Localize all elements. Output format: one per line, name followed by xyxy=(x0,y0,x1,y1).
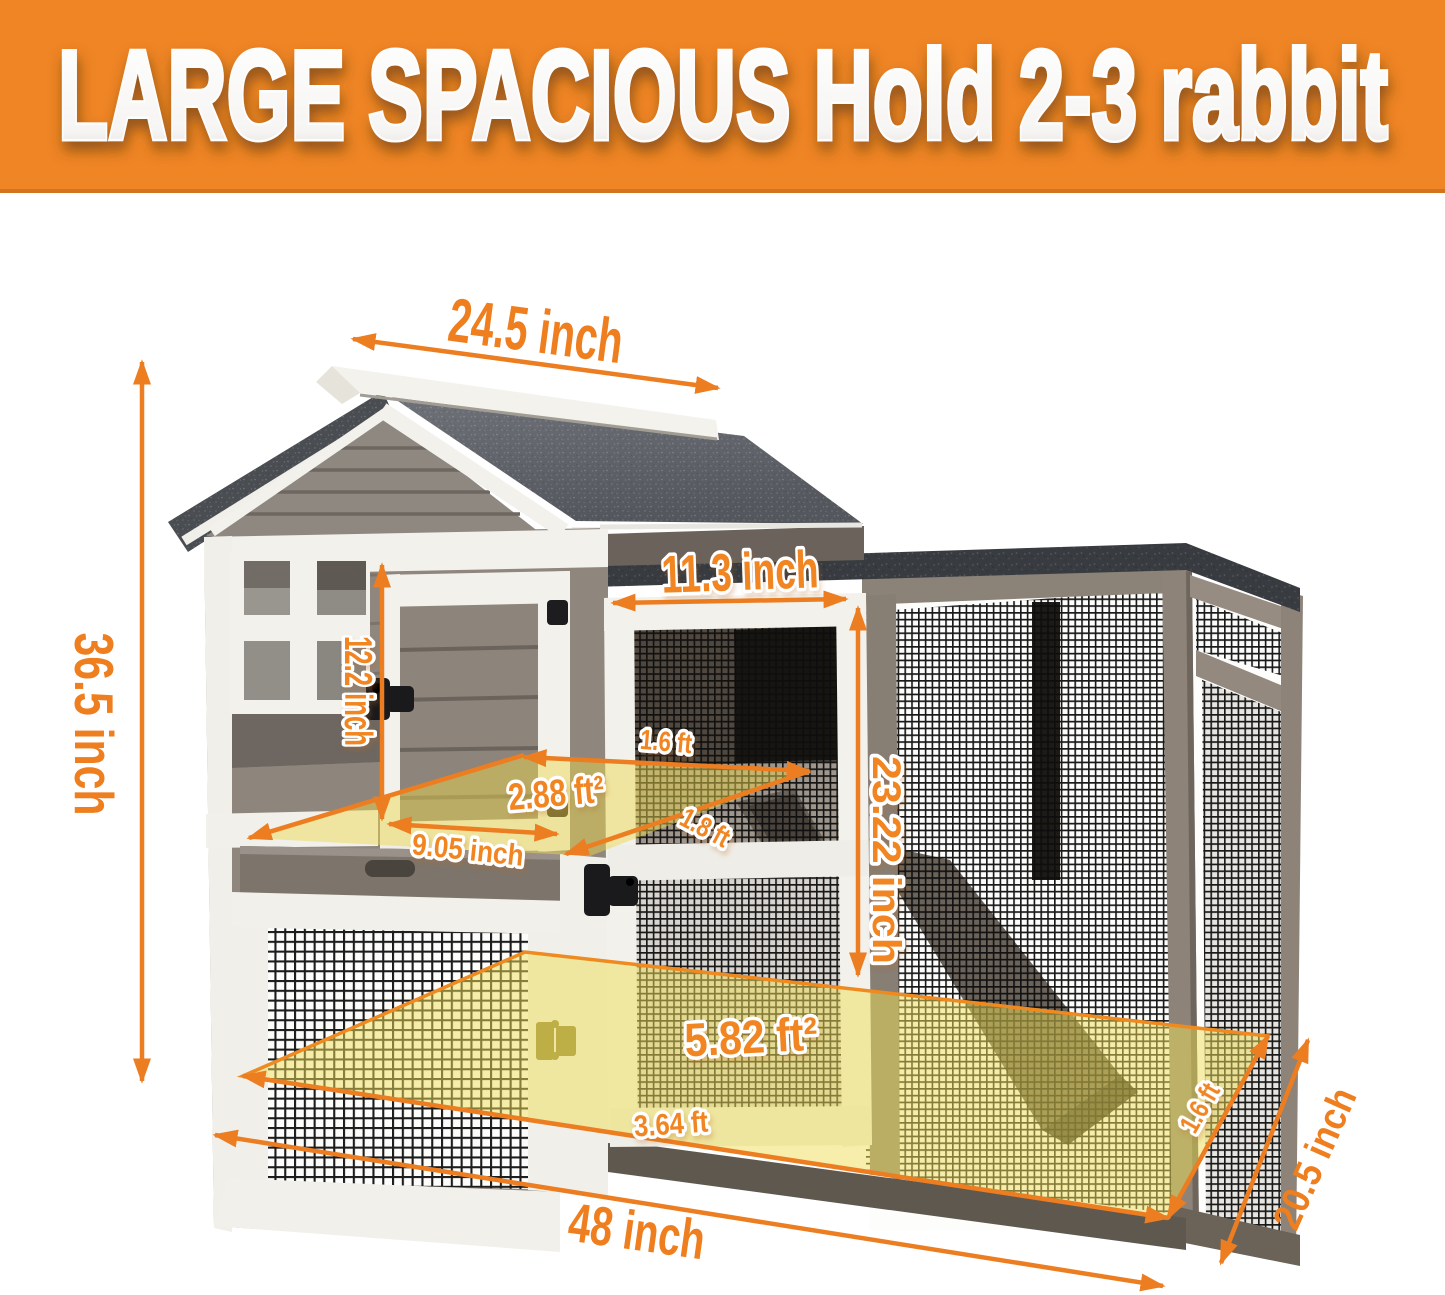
svg-text:23.22 inch: 23.22 inch xyxy=(864,756,908,964)
svg-text:3.64 ft: 3.64 ft xyxy=(633,1105,709,1143)
svg-text:36.5 inch: 36.5 inch xyxy=(63,633,125,816)
svg-text:2.88 ft²: 2.88 ft² xyxy=(506,769,605,819)
svg-text:5.82 ft²: 5.82 ft² xyxy=(683,1007,819,1067)
svg-text:LARGE SPACIOUS Hold 2-3 rabbit: LARGE SPACIOUS Hold 2-3 rabbit xyxy=(58,24,1388,166)
svg-text:11.3 inch: 11.3 inch xyxy=(661,540,820,604)
svg-text:12.2 inch: 12.2 inch xyxy=(336,636,379,746)
svg-text:1.6 ft: 1.6 ft xyxy=(639,724,694,759)
